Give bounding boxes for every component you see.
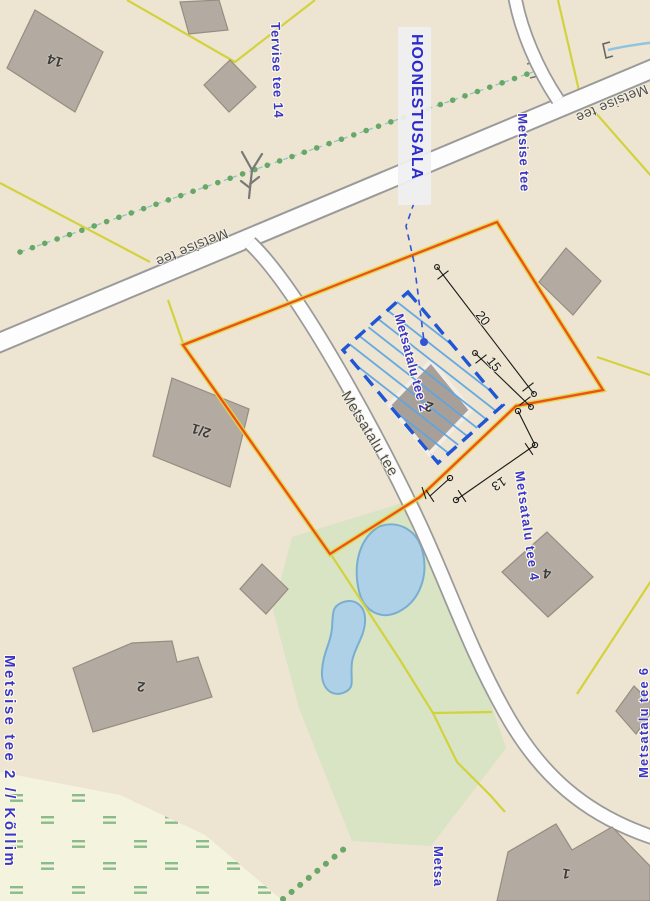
bush-row	[283, 844, 350, 899]
building-top	[180, 0, 228, 34]
map-canvas[interactable]: HOONESTUSALA Tervise tee 14 Metsise tee …	[0, 0, 650, 901]
road-branch-north	[514, 0, 558, 100]
meadow-area	[0, 772, 283, 901]
stream	[603, 42, 650, 58]
hoonestusala-label: HOONESTUSALA	[407, 34, 425, 180]
building-diamond	[204, 60, 256, 112]
hoonestusala-callout: HOONESTUSALA	[398, 27, 431, 205]
parcel-label-metsatalu-tee-6: Metsatalu tee 6	[636, 667, 650, 778]
parcel-label-metsise-tee: Metsise tee	[515, 113, 533, 192]
map-graphics	[0, 0, 650, 901]
parcel-label-metsa-partial: Metsa	[431, 846, 446, 887]
parcel-label-metsise-tee-2-kollim: Metsise tee 2 // Kõllim	[1, 655, 18, 868]
